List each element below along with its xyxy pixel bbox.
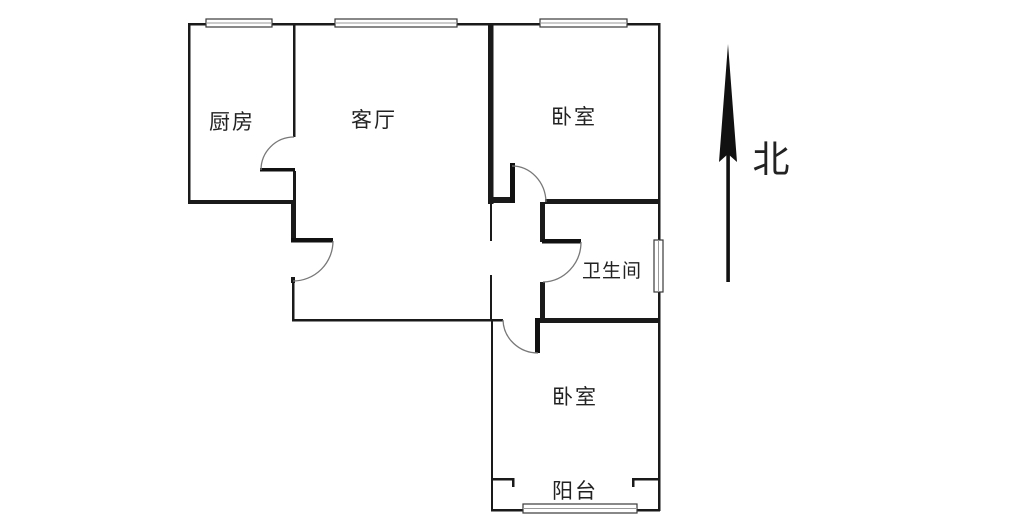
kitchen-door-leaf: [260, 168, 295, 172]
entry-door-arc: [293, 241, 333, 281]
bathroom-door-arc: [543, 242, 581, 282]
room-label-bedroom-south: 卧室: [552, 385, 598, 409]
entry-door-leaf: [291, 238, 333, 243]
bedroom-north-door-leaf: [510, 163, 515, 203]
wall-kitchen-west: [188, 23, 191, 204]
bathroom-door-leaf: [542, 239, 581, 244]
room-label-balcony: 阳台: [552, 479, 598, 503]
wall-balcony-tick-left: [512, 478, 515, 487]
wall-balcony-top-right: [632, 478, 658, 481]
wall-balcony-tick-right: [632, 478, 635, 487]
room-label-living: 客厅: [351, 108, 397, 132]
wall-hall-west-upper: [490, 204, 492, 241]
wall-hall-west-lower: [490, 275, 492, 321]
wall-bathroom-west-lower: [540, 282, 545, 321]
wall-center-thick: [488, 23, 494, 204]
wall-bathroom-south: [536, 318, 660, 323]
bedroom-south-door-arc: [503, 320, 538, 353]
wall-balcony-top-left: [491, 478, 514, 481]
north-arrow-head: [719, 44, 737, 162]
wall-kitchen-south: [188, 200, 296, 204]
north-arrow-shaft: [726, 152, 730, 282]
room-label-bedroom-north: 卧室: [551, 105, 597, 129]
room-label-kitchen: 厨房: [209, 110, 255, 134]
north-arrow-icon: [719, 44, 737, 282]
wall-bedroom-south-west: [491, 320, 493, 511]
wall-west-lower: [292, 283, 295, 321]
wall-kitchen-partition: [293, 23, 296, 137]
kitchen-door-arc: [261, 137, 294, 170]
north-label: 北: [753, 138, 790, 181]
wall-entry-upper: [291, 204, 296, 241]
room-labels: 厨房 客厅 卧室 卫生间 卧室 阳台 北: [209, 105, 790, 503]
floor-plan: 厨房 客厅 卧室 卫生间 卧室 阳台 北: [0, 0, 1024, 532]
bedroom-south-door-leaf: [535, 318, 540, 353]
wall-living-south: [292, 319, 503, 322]
wall-entry-jamb: [291, 277, 295, 283]
door-leaves: [260, 163, 581, 353]
room-label-bathroom: 卫生间: [582, 260, 642, 282]
bedroom-north-door-arc: [512, 166, 546, 202]
wall-bathroom-west-upper: [540, 202, 545, 242]
wall-kitchen-hinge: [293, 171, 296, 202]
wall-bathroom-north: [545, 199, 658, 204]
floor-plan-canvas: 厨房 客厅 卧室 卫生间 卧室 阳台 北: [0, 0, 1024, 532]
